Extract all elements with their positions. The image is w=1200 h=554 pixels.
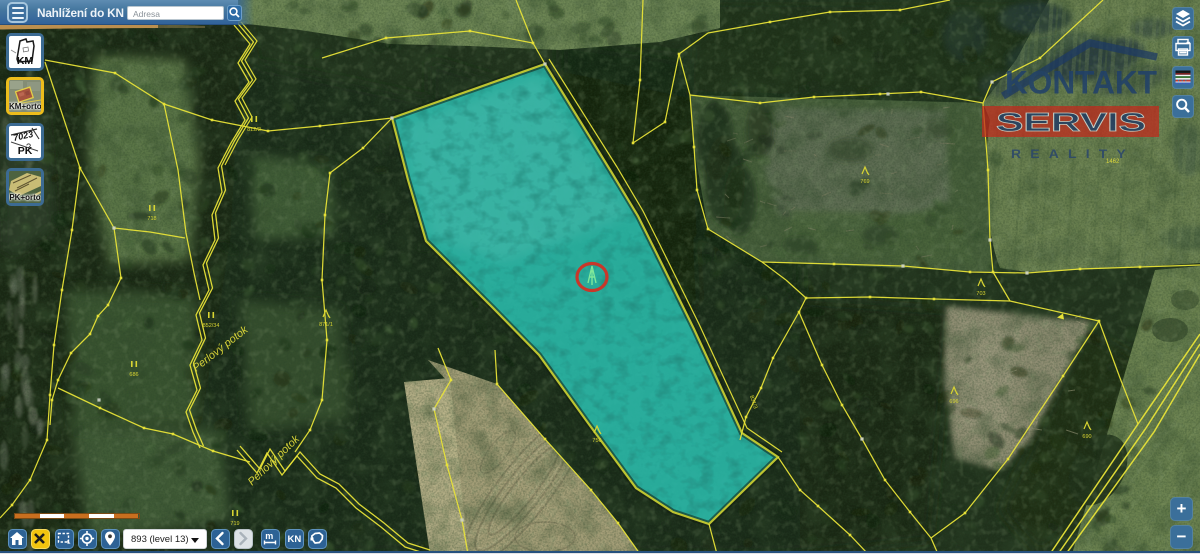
svg-text:871/1: 871/1 <box>319 322 333 328</box>
svg-text:m: m <box>265 531 273 541</box>
svg-text:KONTAKT: KONTAKT <box>1005 64 1158 101</box>
svg-text:812/2: 812/2 <box>247 127 261 133</box>
svg-text:SERVIS: SERVIS <box>996 107 1146 137</box>
svg-text:690: 690 <box>1082 434 1091 440</box>
svg-text:686: 686 <box>129 372 138 378</box>
svg-text:719: 719 <box>230 521 239 527</box>
svg-text:852/34: 852/34 <box>203 323 220 329</box>
svg-text:718: 718 <box>147 216 156 222</box>
svg-text:REALITY: REALITY <box>1011 147 1135 161</box>
svg-text:KN: KN <box>288 534 302 545</box>
svg-text:7023: 7023 <box>12 129 34 143</box>
svg-text:703: 703 <box>976 291 985 297</box>
svg-text:696: 696 <box>949 399 958 405</box>
svg-text:769: 769 <box>860 179 869 185</box>
svg-text:756: 756 <box>592 438 601 444</box>
